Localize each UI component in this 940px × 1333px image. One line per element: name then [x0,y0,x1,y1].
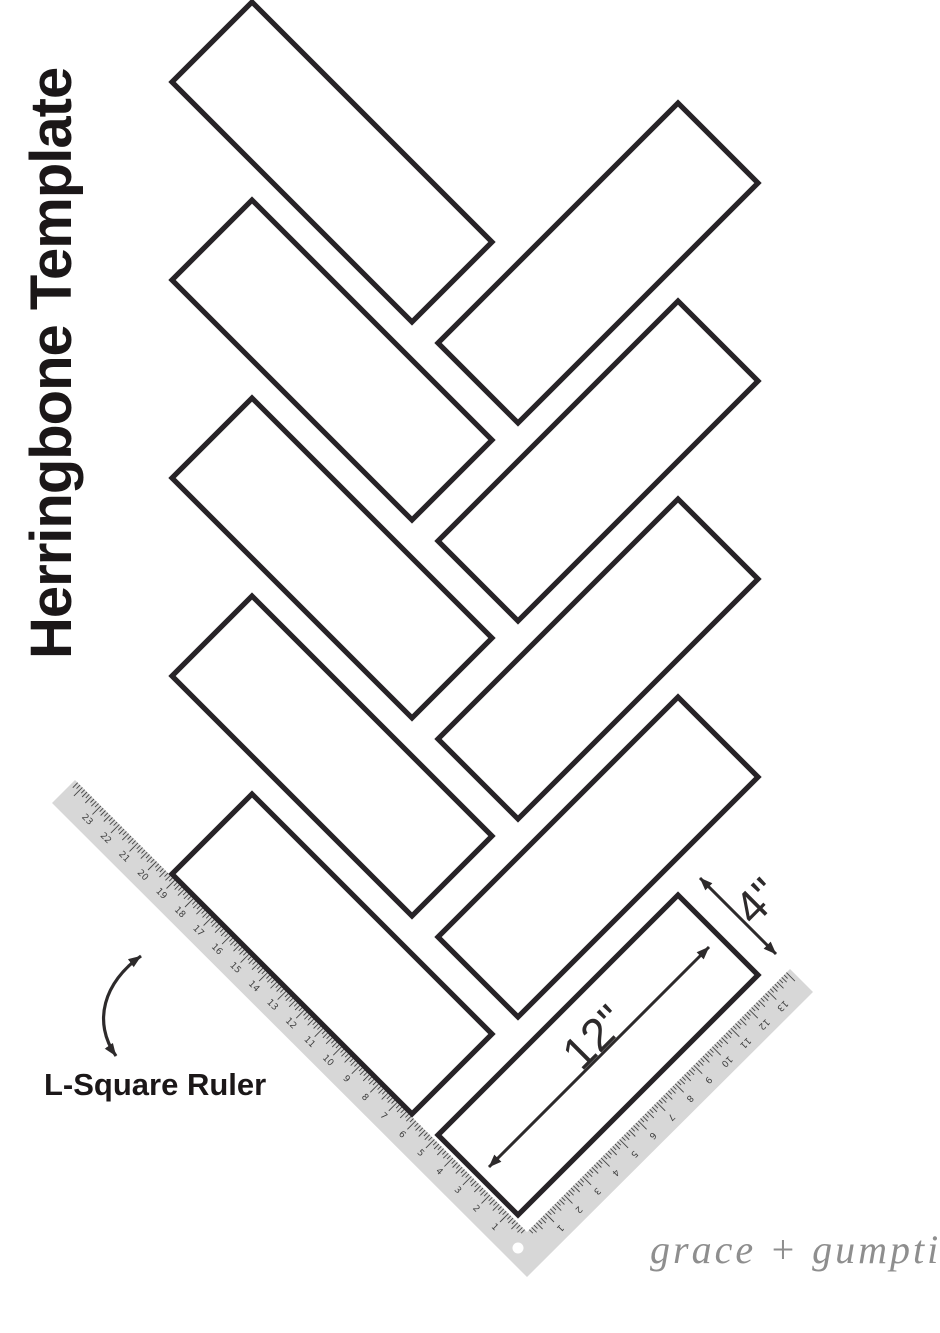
plank-left-3 [172,398,492,718]
ruler-corner-hole [513,1243,524,1254]
dimension-4in: 4" [700,868,790,954]
ruler-label: L-Square Ruler [44,1067,266,1102]
plank-right-4 [438,697,758,1017]
herringbone-pattern [172,2,758,1215]
plank-right-3 [438,499,758,819]
signature: grace + gumption [650,1227,940,1272]
plank-right-1 [438,103,758,423]
l-square-ruler: 1234567891011121314151617181920212223123… [52,780,813,1277]
dimension-4in-label: 4" [724,868,790,934]
plank-left-4 [172,596,492,916]
plank-left-1 [172,2,492,322]
herringbone-template-page: 1234567891011121314151617181920212223123… [0,0,940,1333]
plank-left-2 [172,200,492,520]
ruler-pointer-curved-arrow [104,956,141,1056]
l-square-ruler-body [52,780,813,1277]
plank-right-2 [438,301,758,621]
page-title: Herringbone Template [19,68,84,659]
